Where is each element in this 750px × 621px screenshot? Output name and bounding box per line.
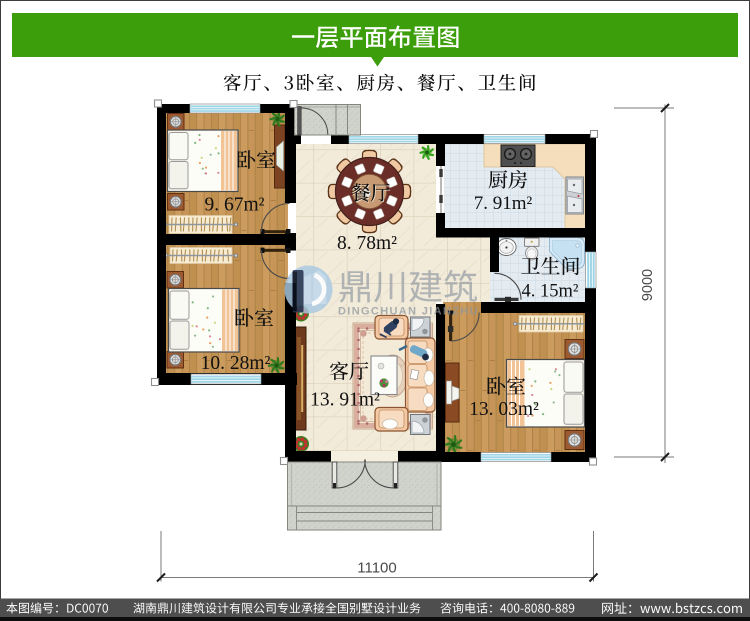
svg-text:10. 28m²: 10. 28m²: [201, 353, 271, 374]
svg-text:11100: 11100: [357, 560, 397, 577]
svg-text:13. 91m²: 13. 91m²: [310, 390, 380, 411]
svg-text:13. 03m²: 13. 03m²: [469, 399, 539, 420]
svg-text:9. 67m²: 9. 67m²: [204, 195, 264, 216]
svg-text:8. 78m²: 8. 78m²: [337, 233, 397, 254]
svg-text:7. 91m²: 7. 91m²: [474, 193, 533, 214]
svg-text:DINGCHUAN JIANZHU: DINGCHUAN JIANZHU: [338, 306, 479, 318]
svg-text:4. 15m²: 4. 15m²: [522, 282, 579, 302]
svg-text:9000: 9000: [640, 269, 656, 301]
